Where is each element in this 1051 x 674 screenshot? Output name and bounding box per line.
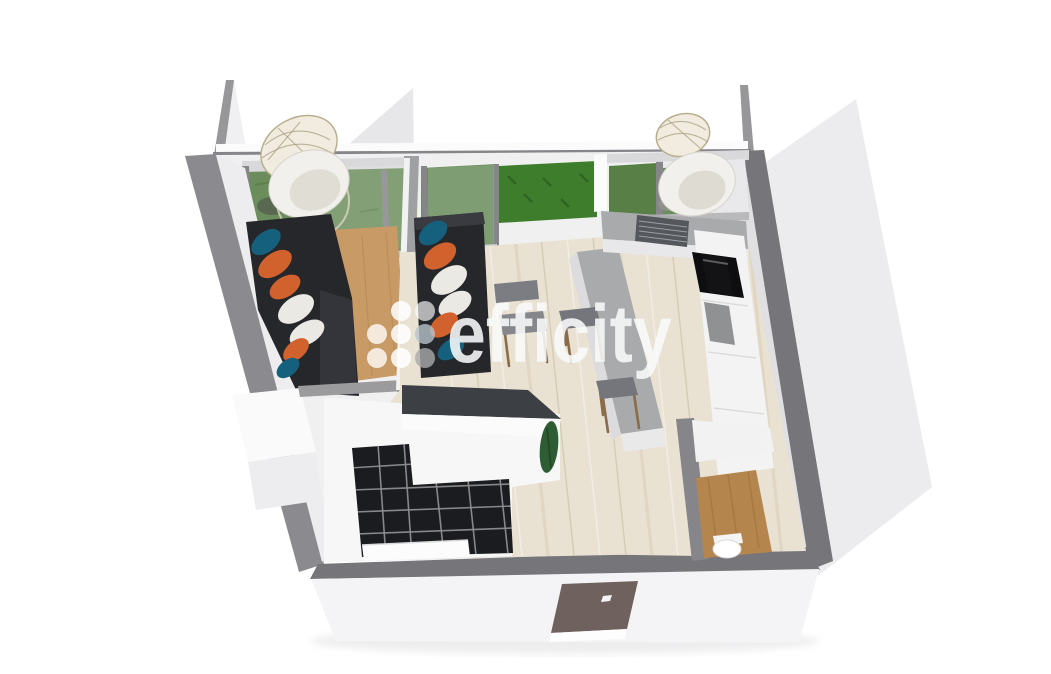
logo-dot [415,348,435,368]
floorplan-3d-render: efficity [0,0,1051,674]
logo-dot [367,348,387,368]
bed-frame-highlight [320,290,357,390]
logo-dot [367,324,387,344]
watermark-text: efficity [447,289,672,381]
logo-dot [391,301,411,321]
logo-dot [415,301,435,321]
logo-dot [415,324,435,344]
right-hedge [609,163,657,219]
bedroom-wardrobe-front [248,452,322,510]
logo-dot [391,324,411,344]
bright-hedge [499,161,597,223]
toilet-bowl [713,540,741,558]
floorplan-3d-screenshot: efficity [0,0,1051,674]
logo-dot [391,348,411,368]
wc [676,418,774,561]
white-glazing-post [594,154,607,212]
entrance-door [551,581,638,633]
